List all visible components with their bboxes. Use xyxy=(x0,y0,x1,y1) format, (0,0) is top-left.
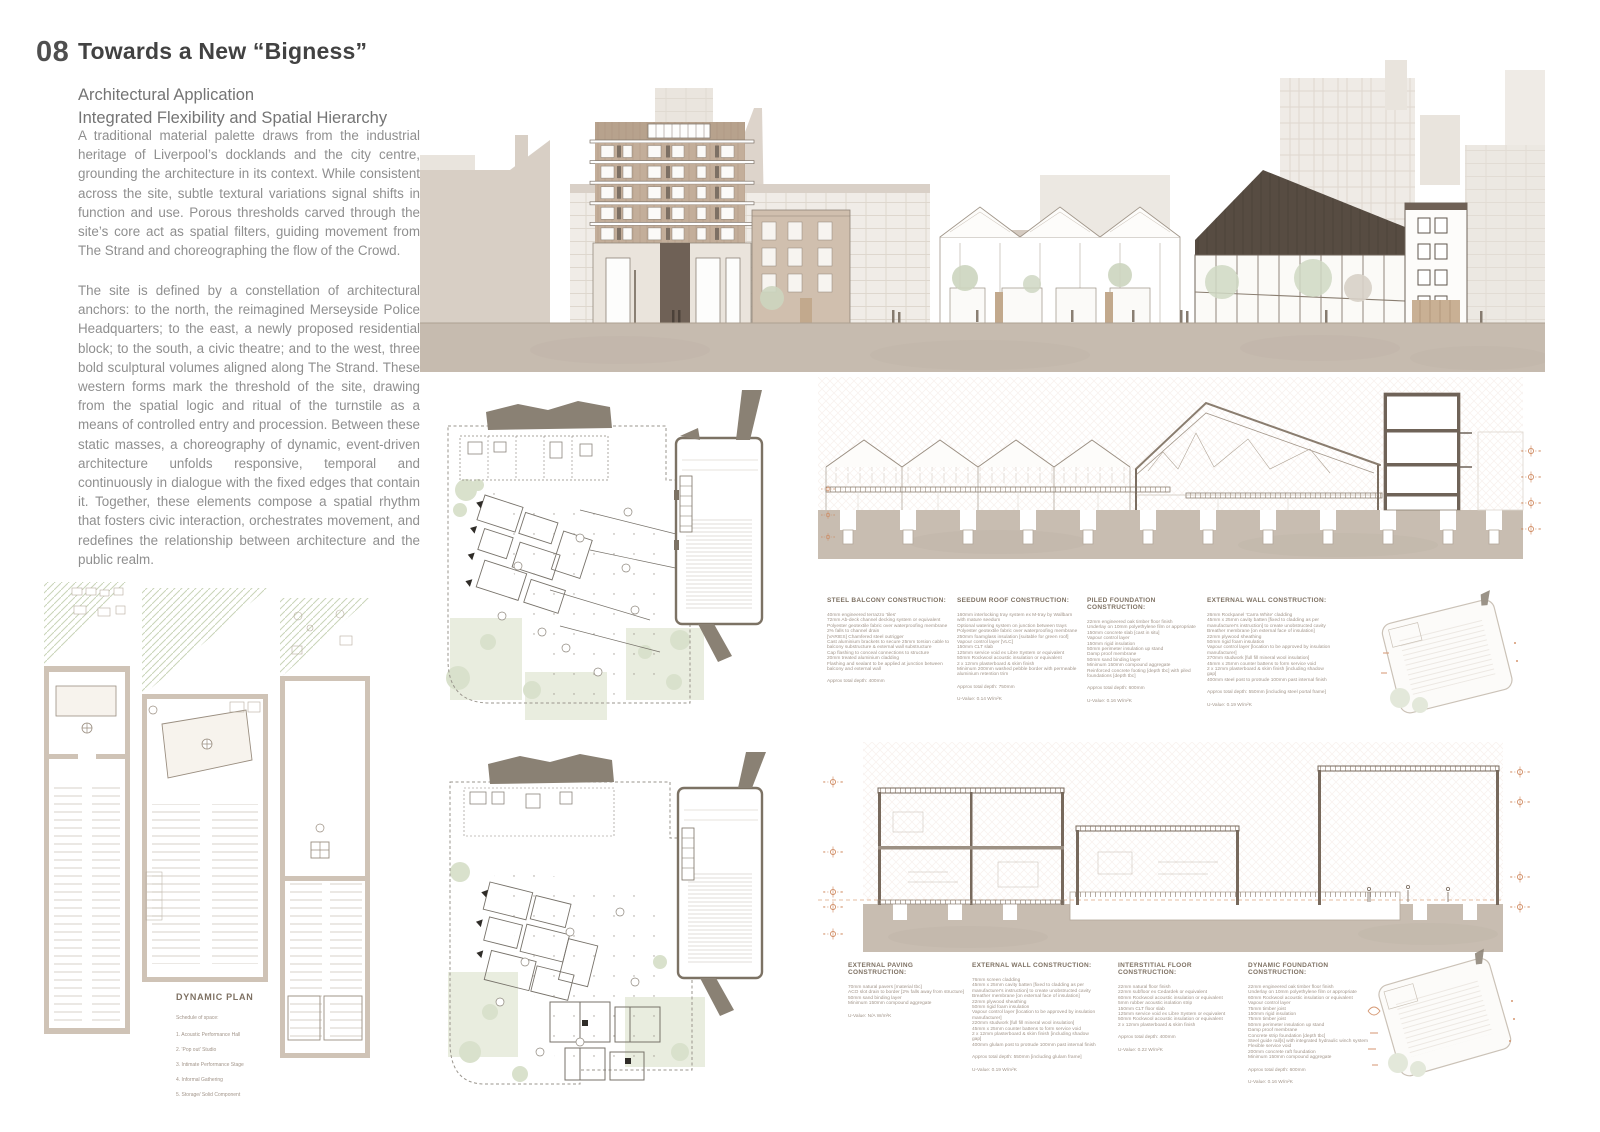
spec-body: 26mm Rockpanel 'Carra White' cladding 45… xyxy=(1207,613,1331,683)
spec-uvalue: U-Value: 0.22 W/m²K xyxy=(1118,1048,1242,1053)
dynamic-plan-item: 2. 'Pop out' Studio xyxy=(176,1047,308,1053)
mid-block-elevation xyxy=(752,210,850,323)
dynamic-plan-item: 4. Informal Gathering xyxy=(176,1077,308,1083)
spec-title: EXTERNAL PAVING CONSTRUCTION: xyxy=(848,962,972,976)
spec-total: Approx total depth: 400mm xyxy=(827,679,951,684)
subtitle-line-1: Architectural Application xyxy=(78,84,387,107)
upper-room-row xyxy=(460,436,608,480)
spec-uvalue: U-Value: 0.16 W/m²K xyxy=(1087,699,1211,704)
spec-total: Approx total depth: 600mm xyxy=(1087,686,1211,691)
spec-title: EXTERNAL WALL CONSTRUCTION: xyxy=(1207,597,1331,604)
spec-uvalue: U-Value: 0.16 W/m²K xyxy=(1248,1080,1372,1085)
spec-interstitial-floor: INTERSTITIAL FLOOR CONSTRUCTION: 22mm na… xyxy=(1118,962,1242,1053)
spec-steel-balcony: STEEL BALCONY CONSTRUCTION: 40mm enginee… xyxy=(827,597,951,685)
spec-total: Approx total depth: 600mm xyxy=(1248,1068,1372,1073)
spec-uvalue: U-Value: 0.14 W/m²K xyxy=(957,697,1081,702)
spec-title: PILED FOUNDATION CONSTRUCTION: xyxy=(1087,597,1211,611)
residential-block-elevation xyxy=(590,122,754,323)
dynamic-plan-title: DYNAMIC PLAN xyxy=(176,992,308,1002)
upper-room-row xyxy=(464,788,614,836)
dynamic-plan-item: 3. Intimate Performance Stage xyxy=(176,1062,308,1068)
dynamic-plan-subtitle: Schedule of space: xyxy=(176,1015,308,1021)
spec-uvalue: U-Value: N/A W/m²K xyxy=(848,1014,972,1019)
intro-paragraph-2: The site is defined by a constellation o… xyxy=(78,281,420,569)
site-plan-drawing-2 xyxy=(430,752,782,1092)
spec-external-wall-2: EXTERNAL WALL CONSTRUCTION: 76mm screen … xyxy=(972,962,1096,1073)
spec-total: Approx total depth: 400mm xyxy=(1118,1035,1242,1040)
spec-body: 22mm engineered oak timber floor finish … xyxy=(1248,985,1372,1061)
adjacent-roof-band xyxy=(486,401,612,430)
page-subtitle: Architectural Application Integrated Fle… xyxy=(78,84,387,130)
long-section-drawing xyxy=(818,377,1545,577)
city-elevation-drawing xyxy=(420,60,1545,372)
site-plan-drawing-1 xyxy=(430,390,780,722)
plan-strip-3 xyxy=(280,598,370,1058)
spec-title: SEEDUM ROOF CONSTRUCTION: xyxy=(957,597,1081,604)
shed-elevation xyxy=(940,207,1180,323)
spec-total: Approx total depth: 550mm [including ste… xyxy=(1207,690,1331,695)
spec-body: 40mm engineered terrazzo 'tiles' 72mm Ab… xyxy=(827,613,951,672)
dynamic-plan-item: 5. Storage/ Solid Component xyxy=(176,1092,308,1098)
spec-body: 76mm screen cladding 45mm x 25mm cavity … xyxy=(972,978,1096,1048)
spec-total: Approx total depth: 550mm [including glu… xyxy=(972,1055,1096,1060)
adjacent-roof-band xyxy=(488,754,614,784)
dynamic-plan-legend: DYNAMIC PLAN Schedule of space: 1. Acous… xyxy=(176,992,308,1107)
plan-strip-1 xyxy=(44,582,130,1034)
spec-uvalue: U-Value: 0.19 W/m²K xyxy=(972,1068,1096,1073)
spec-body: 160mm interlocking tray system ex M-tray… xyxy=(957,613,1081,678)
spec-body: 22mm natural floor finish 22mm subfloor … xyxy=(1118,985,1242,1028)
page-title: Towards a New “Bigness” xyxy=(78,38,367,65)
spec-dynamic-foundation: DYNAMIC FOUNDATION CONSTRUCTION: 22mm en… xyxy=(1248,962,1372,1086)
presentation-sheet: 08 Towards a New “Bigness” Architectural… xyxy=(0,0,1600,1132)
cross-section-drawing xyxy=(808,742,1545,952)
dynamic-plan-item: 1. Acoustic Performance Hall xyxy=(176,1032,308,1038)
theatre-building-plan xyxy=(674,390,762,662)
spec-uvalue: U-Value: 0.19 W/m²K xyxy=(1207,703,1331,708)
spec-title: INTERSTITIAL FLOOR CONSTRUCTION: xyxy=(1118,962,1242,976)
plan-strip-2 xyxy=(142,588,268,982)
spec-title: DYNAMIC FOUNDATION CONSTRUCTION: xyxy=(1248,962,1372,976)
spec-external-paving: EXTERNAL PAVING CONSTRUCTION: 70mm natur… xyxy=(848,962,972,1019)
spec-body: 22mm engineered oak timber floor finish … xyxy=(1087,620,1211,679)
detail-key-plan-1 xyxy=(1345,583,1545,733)
spec-title: STEEL BALCONY CONSTRUCTION: xyxy=(827,597,951,604)
elevation-ground xyxy=(420,323,1545,372)
spec-title: EXTERNAL WALL CONSTRUCTION: xyxy=(972,962,1096,969)
spec-external-wall-1: EXTERNAL WALL CONSTRUCTION: 26mm Rockpan… xyxy=(1207,597,1331,708)
spec-piled-foundation: PILED FOUNDATION CONSTRUCTION: 22mm engi… xyxy=(1087,597,1211,704)
spec-seedum-roof: SEEDUM ROOF CONSTRUCTION: 160mm interloc… xyxy=(957,597,1081,703)
spec-body: 70mm natural pavers [material tbc] ACO s… xyxy=(848,985,972,1007)
intro-paragraph-1: A traditional material palette draws fro… xyxy=(78,126,420,260)
spec-total: Approx total depth: 750mm xyxy=(957,685,1081,690)
theatre-building-plan xyxy=(678,752,766,1016)
page-number: 08 xyxy=(36,36,69,69)
